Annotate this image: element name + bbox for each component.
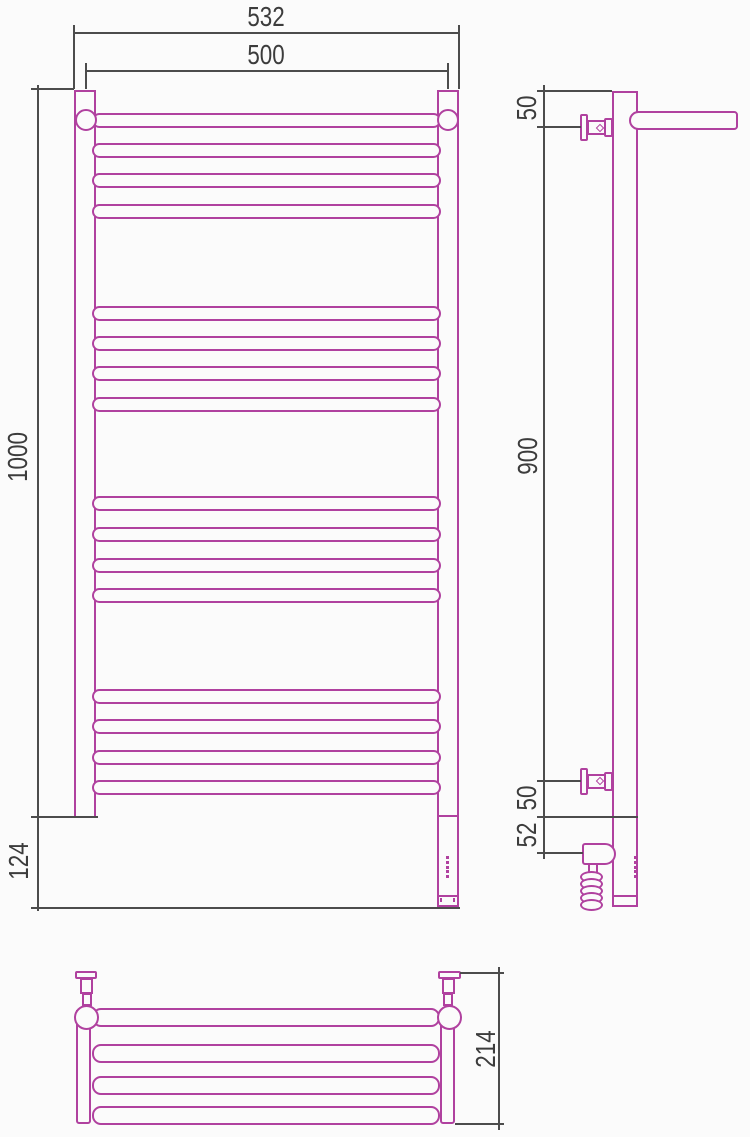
plan-shelf-bar (92, 1076, 440, 1095)
ext-line (73, 25, 75, 89)
side-tube-right-edge (636, 91, 638, 906)
ext-line (537, 90, 612, 92)
dim-heater-offset-label: 52 (513, 822, 541, 847)
side-tube-top-cap (612, 91, 638, 93)
elbow-fitting-right (437, 109, 459, 131)
plan-bracket-shaft-left (80, 978, 93, 994)
control-unit-top-edge (437, 815, 460, 817)
plan-riser-circle-left (74, 1005, 99, 1030)
dim-height-label: 1000 (4, 432, 32, 482)
rung (92, 397, 441, 412)
foot-mark (440, 898, 442, 902)
dim-bracket-span-label: 900 (514, 437, 542, 474)
ext-line (537, 816, 638, 818)
ext-line (447, 63, 449, 89)
dim-top-bracket-offset-label: 50 (513, 96, 541, 121)
led-dot (446, 861, 449, 864)
dim-line-bottom-unit (37, 817, 39, 911)
rung (92, 204, 441, 219)
rung (92, 496, 441, 511)
led-dot (634, 875, 637, 878)
led-dot (634, 870, 637, 873)
bracket-collar (604, 118, 613, 137)
led-dot (446, 866, 449, 869)
rung (92, 366, 441, 381)
ext-line (537, 780, 581, 782)
plan-bracket-shaft-right (442, 978, 455, 994)
plan-shelf-bar (92, 1044, 440, 1063)
rung (92, 750, 441, 765)
dim-line-height (37, 85, 39, 817)
ext-line (460, 972, 504, 974)
ext-line (458, 25, 460, 89)
led-dot (446, 856, 449, 859)
rung (92, 527, 441, 542)
led-dot (634, 861, 637, 864)
led-dot (446, 870, 449, 873)
ext-line-floor (31, 907, 460, 909)
plan-shelf-bar (92, 1106, 440, 1125)
left-riser-tube (74, 90, 96, 818)
heating-element-housing (582, 843, 616, 865)
dim-bottom-bracket-offset-label: 50 (513, 786, 541, 811)
rung (92, 173, 441, 188)
led-dot (446, 875, 449, 878)
rung (92, 689, 441, 704)
shelf-rail (629, 111, 738, 131)
rung (92, 336, 441, 351)
rung (92, 719, 441, 734)
rung (92, 558, 441, 573)
dim-depth-label: 214 (472, 1030, 500, 1067)
rung (92, 306, 441, 321)
ext-line (85, 63, 87, 89)
ext-line (537, 126, 581, 128)
ext-line (31, 88, 74, 90)
technical-drawing: 532 500 1000 124 (0, 0, 750, 1137)
led-dot (634, 856, 637, 859)
side-tube-bottom-plug (612, 895, 638, 907)
rung (92, 588, 441, 603)
top-rail (92, 113, 441, 128)
rung (92, 780, 441, 795)
dim-rail-width-label: 500 (247, 41, 284, 69)
dim-overall-width-label: 532 (247, 3, 284, 31)
plan-riser-circle-right (437, 1005, 462, 1030)
plan-top-rail (92, 1008, 440, 1027)
dim-bottom-unit-label: 124 (5, 842, 33, 879)
ext-line (31, 816, 98, 818)
ext-line (537, 852, 583, 854)
ext-line (455, 1123, 504, 1125)
foot-mark (453, 898, 455, 902)
led-dot (634, 866, 637, 869)
cable-coil-loop (580, 899, 603, 911)
elbow-fitting-left (75, 109, 97, 131)
rung (92, 143, 441, 158)
bracket-collar (604, 772, 613, 791)
